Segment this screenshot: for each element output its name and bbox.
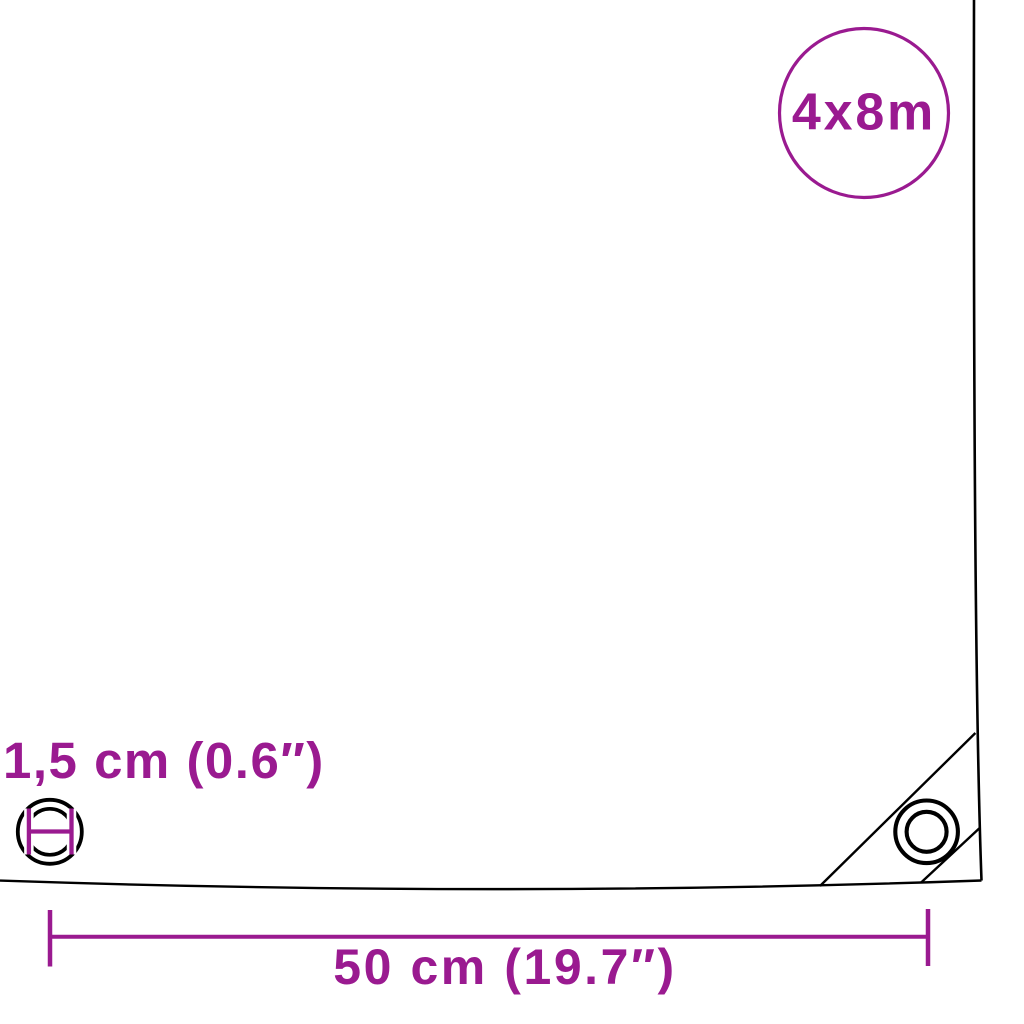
svg-text:4x8m: 4x8m <box>792 84 936 142</box>
svg-text:1,5 cm (0.6″): 1,5 cm (0.6″) <box>3 732 325 789</box>
svg-text:50 cm (19.7″): 50 cm (19.7″) <box>333 939 676 995</box>
